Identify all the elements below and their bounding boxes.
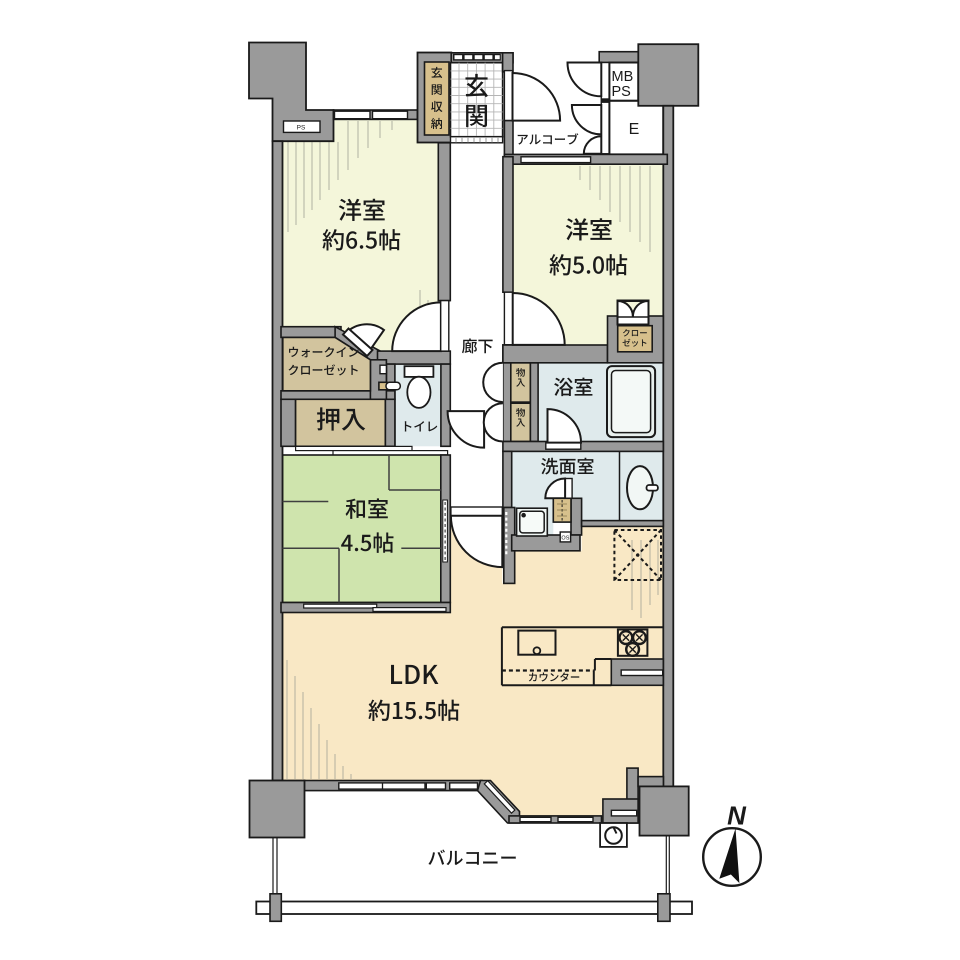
svg-text:OS: OS	[561, 536, 569, 542]
svg-text:N: N	[727, 801, 747, 831]
svg-text:MB: MB	[612, 69, 634, 85]
svg-text:PS: PS	[297, 125, 306, 132]
svg-text:E: E	[629, 121, 640, 138]
svg-text:PS: PS	[612, 84, 631, 100]
